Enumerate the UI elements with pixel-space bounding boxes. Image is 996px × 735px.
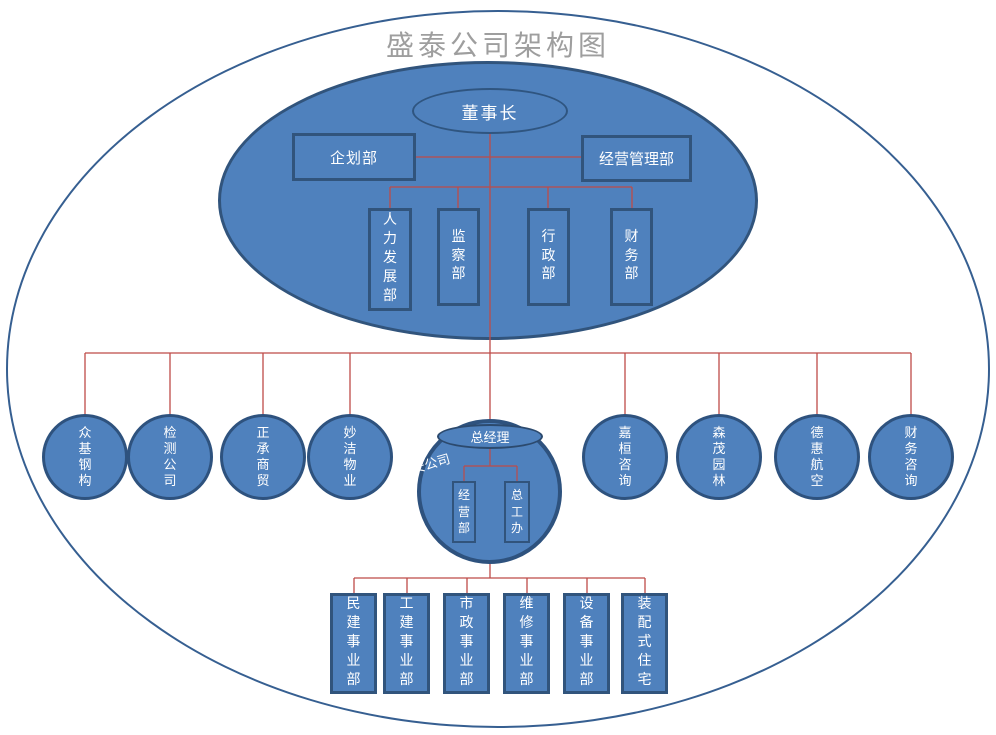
gm-office-box-2: 总工办	[504, 481, 530, 543]
org-chart-canvas: 盛泰公司架构图	[0, 0, 996, 735]
gm-office-label-1: 经营部	[458, 487, 470, 537]
gm-office-label-2: 总工办	[511, 487, 523, 537]
gm-office-box-1: 经营部	[452, 481, 476, 543]
general-manager-ellipse: 总经理	[437, 424, 543, 449]
general-manager-label: 总经理	[470, 427, 509, 446]
gm-connector-lines	[0, 0, 996, 735]
